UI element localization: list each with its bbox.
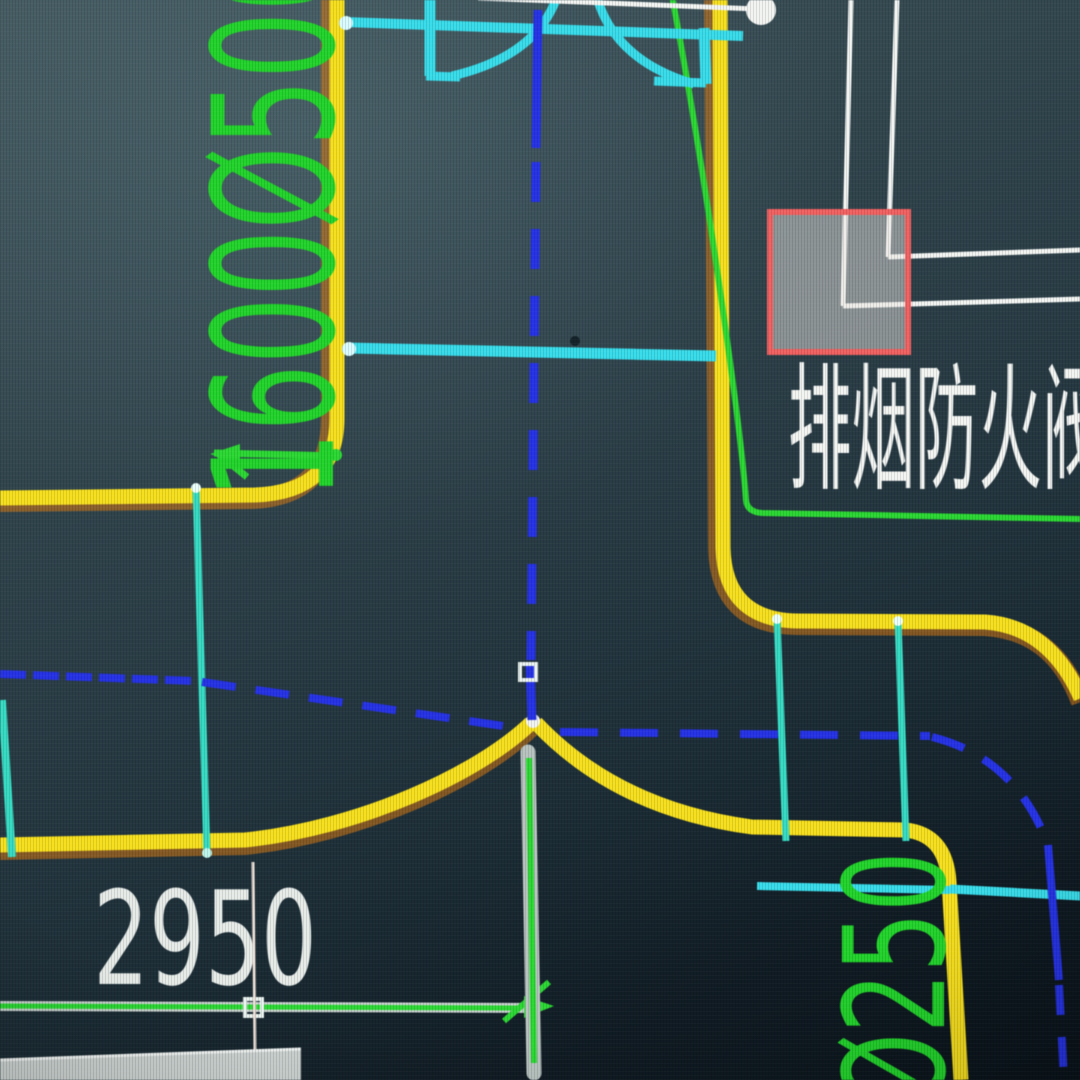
branch-horizontal-mid[interactable]: [347, 348, 716, 356]
screen-speck: [570, 336, 580, 346]
drawing-layer: 1600Ø500 排烟防火阀 2950 Ø250: [0, 0, 1080, 1080]
duct-fitting-symbol[interactable]: [426, 0, 706, 84]
branch-horizontal-top[interactable]: [345, 22, 743, 36]
duct-size-label-right[interactable]: Ø250: [815, 851, 978, 1080]
branch-verticals[interactable]: [2, 483, 906, 858]
duct-size-right-text: Ø250: [815, 851, 978, 1080]
branch-vertical-left-edge: [2, 700, 12, 857]
fire-damper-box[interactable]: [770, 212, 908, 352]
fire-damper-text: 排烟防火阀: [788, 351, 1080, 512]
cad-canvas[interactable]: 1600Ø500 排烟防火阀 2950 Ø250: [0, 0, 1080, 1080]
leader-node: [746, 0, 776, 25]
dimension-value-label[interactable]: 2950: [93, 865, 317, 1016]
duct-wave-left[interactable]: [0, 723, 531, 845]
duct-size-left-text: 1600Ø500: [179, 0, 374, 499]
dimension-value-text: 2950: [93, 865, 317, 1016]
fire-damper-label[interactable]: 排烟防火阀: [788, 351, 1080, 512]
extension-bar[interactable]: [528, 752, 534, 1073]
duct-size-label-left[interactable]: 1600Ø500: [179, 0, 374, 499]
